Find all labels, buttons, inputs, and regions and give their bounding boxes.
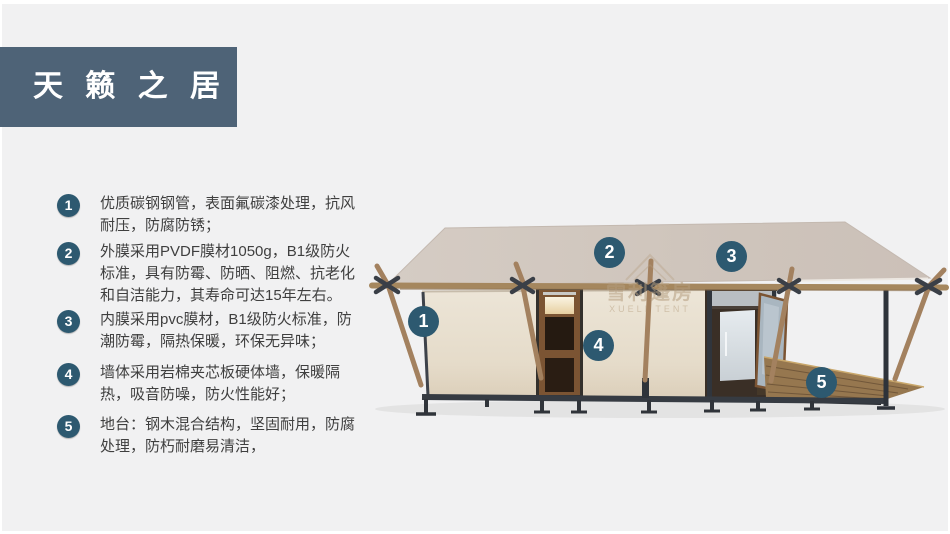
callout-badge-4: 4 bbox=[583, 330, 614, 361]
title-banner: 天 籁 之 居 bbox=[0, 47, 237, 127]
callout-badge-5: 5 bbox=[806, 367, 837, 398]
slide: 天 籁 之 居 1 优质碳钢钢管，表面氟碳漆处理，抗风耐压，防腐防锈； 2 外膜… bbox=[0, 0, 950, 534]
page-title: 天 籁 之 居 bbox=[0, 47, 237, 127]
callout-badge-2: 2 bbox=[594, 237, 625, 268]
callout-badge-3: 3 bbox=[716, 241, 747, 272]
callout-badge-1: 1 bbox=[408, 306, 439, 337]
entry-door bbox=[536, 287, 583, 397]
roof-canopy bbox=[386, 222, 930, 286]
eave-beam bbox=[372, 286, 946, 291]
